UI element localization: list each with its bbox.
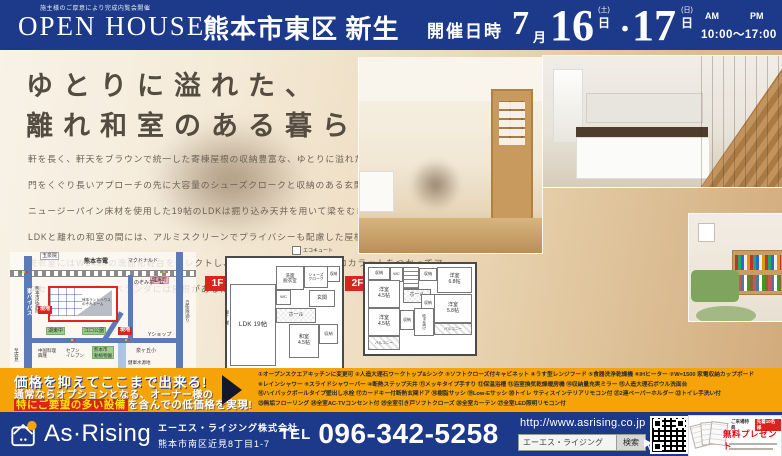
- qr-finder: [653, 419, 662, 428]
- price-copy-highlight: 特にご要望の多い設備: [14, 399, 128, 411]
- floor-plan-1f: LDK 19帖 物干し場 洗面 脱衣室 WC ホール 和室 4.5帖 収納 玄関…: [225, 256, 344, 372]
- arrow-right-icon: [222, 375, 242, 405]
- room-hall: ホール: [276, 308, 316, 323]
- gift-caption-line: [729, 443, 777, 445]
- tel-label: TEL: [280, 426, 311, 443]
- date-day2: 17: [632, 0, 676, 51]
- date-day1-weekday: (土): [598, 7, 610, 14]
- kitchen-back-cabinets: [586, 93, 703, 124]
- map-label-kotou-jhs: 湖東中: [46, 327, 65, 335]
- map-label-y-shop: Yショップ: [148, 332, 171, 338]
- company-info: エーエス・ライジング株式会社 熊本市南区近見8丁目1-7: [158, 421, 298, 450]
- access-map: 熊本市電 玉泉院 マクドナルド 健軍町 東バイパス 熊本市民病院 自衛隊通り 熊…: [10, 252, 196, 372]
- event-date-label: 開催日時: [427, 17, 503, 42]
- equipment-feature-list: ①オープンスクエアキッチンに変更可 ②人造大理石ワークトップ&シンク ③ソフトク…: [258, 371, 754, 409]
- company-address: 熊本市南区近見8丁目1-7: [158, 437, 298, 450]
- map-label-eguchi-park: 江口公園: [82, 327, 106, 335]
- room-genkan: 玄関: [309, 290, 335, 307]
- site-marker-1: 現地: [38, 306, 52, 314]
- room-balcony: バルコニー: [434, 323, 472, 335]
- gift-caption-line: [729, 448, 773, 450]
- room-closet: 収納: [400, 310, 414, 330]
- room-bedroom-68: 洋室 6.8帖: [437, 267, 472, 293]
- search-input[interactable]: エーエス・ライジング: [519, 435, 616, 450]
- date-month-unit: 月: [533, 27, 546, 46]
- house-logo-icon: [10, 420, 38, 448]
- map-label-to-chikami: 至近見: [14, 348, 19, 362]
- sofa-photo: [688, 213, 782, 322]
- feature-line: ①オープンスクエアキッチンに変更可 ②人造大理石ワークトップ&シンク ③ソフトク…: [258, 371, 754, 381]
- road-right: [176, 252, 183, 372]
- website-url[interactable]: http://www.asrising.co.jp: [520, 417, 646, 429]
- time-range: 10:00〜17:00: [701, 26, 777, 42]
- qr-finder: [653, 442, 662, 451]
- traffic-signal-icon: [122, 339, 130, 341]
- room-void: 吹き抜け: [414, 308, 434, 336]
- map-label-temple: 玉泉院: [40, 252, 59, 260]
- feature-line: ㉓無垢フローリング ㉔全室AC-TVコンセント付 ㉕全室引き戸ソフトクローズ ㉖…: [258, 400, 754, 410]
- bookshelf: [732, 250, 782, 295]
- open-house-title: OPEN HOUSE: [18, 11, 205, 42]
- room-closet: 収納: [419, 268, 437, 281]
- company-logo-text: As·Rising: [44, 420, 151, 448]
- room-closet: 収納: [327, 266, 340, 282]
- ecocute-marker: エコキュート: [292, 246, 333, 255]
- qr-finder: [676, 419, 685, 428]
- room-drying-area: 物干し場: [225, 310, 230, 325]
- stair-railing: [701, 56, 782, 187]
- kitchen-counter-top: [576, 127, 707, 137]
- room-wc: WC: [276, 290, 291, 305]
- kitchen-photo: [542, 55, 782, 188]
- flyer-page: 施主様のご厚意により完成内覧会開催 OPEN HOUSE 熊本市東区 新生 開催…: [0, 0, 782, 456]
- map-label-chinese-restaurant: 中国料理 興隆: [38, 348, 56, 359]
- map-label-nozomi-home: のぞみホーム: [134, 280, 164, 286]
- date-month: 7: [512, 5, 529, 43]
- map-label-estate-note: 熊本ランドハウス のぞみホーム: [82, 298, 111, 307]
- feature-line: ⑧レインシャワー ⑨スライドシャワーバー ⑩断熱ステップ天井 ⑪メッキタイプ手す…: [258, 381, 754, 391]
- interior-photo-dining: [358, 57, 543, 254]
- traffic-signal-icon: [160, 271, 168, 273]
- catch-copy-line1: ゆとりに溢れた、: [26, 64, 322, 103]
- estate-lot-grid: [50, 288, 82, 316]
- photo-wood-floor: [359, 218, 542, 253]
- catch-copy-line2: 離れ和室のある暮らし: [26, 104, 396, 143]
- room-closet: 収納: [319, 324, 338, 344]
- traffic-signal-icon: [68, 339, 76, 341]
- location-title: 熊本市東区 新生: [203, 9, 400, 46]
- map-label-water-source: 健軍水源地: [128, 360, 151, 365]
- room-balcony: バルコニー: [368, 336, 400, 350]
- room-ldk: LDK 19帖: [230, 284, 276, 366]
- room-bedroom-58: 洋室 5.8帖: [434, 294, 472, 323]
- feature-strip: 価格を抑えてここまで出来る! 通常ならオプションとなる、オーナー様の 特にご要望…: [0, 368, 782, 412]
- room-shoes-cloak: シューズ クローク: [304, 266, 328, 288]
- book-spines-row: [735, 255, 781, 270]
- map-label-seven-eleven: セブン イレブン: [66, 348, 84, 359]
- header-bar: 施主様のご厚意により完成内覧会開催 OPEN HOUSE 熊本市東区 新生 開催…: [0, 0, 782, 50]
- green-sofa: [691, 270, 739, 302]
- map-label-mcdonalds: マクドナルド: [128, 258, 158, 264]
- footer-bar: As·Rising エーエス・ライジング株式会社 熊本市南区近見8丁目1-7 T…: [0, 412, 782, 456]
- phone-block: TEL 096-342-5258: [280, 418, 499, 450]
- date-day2-unit: 日: [681, 17, 693, 29]
- company-name: エーエス・ライジング株式会社: [158, 421, 298, 434]
- gift-promo-box: ご来場特典 先着10名様 無料プレゼント: [688, 415, 782, 456]
- stairs-2f: [403, 267, 419, 289]
- map-label-tram: 熊本市電: [84, 259, 108, 266]
- ecocute-label: エコキュート: [303, 248, 333, 254]
- photo-wood-door: [491, 89, 533, 222]
- qr-code: [650, 416, 688, 454]
- photo-white-cabinet: [359, 171, 394, 212]
- round-rug: [696, 306, 756, 322]
- map-label-bypass: 東バイパス: [25, 288, 32, 316]
- time-am-label: AM: [705, 11, 719, 21]
- map-label-zoo: 熊本市 動植物園: [92, 346, 114, 359]
- book-spines-row: [735, 275, 781, 290]
- wall-art-frame: [698, 223, 715, 242]
- room-bedroom-45a: 洋室 4.5帖: [368, 280, 400, 308]
- map-label-izumigaoka-es: 泉ヶ丘小: [136, 348, 156, 354]
- site-estate-area: 熊本ランドハウス のぞみホーム: [48, 286, 118, 322]
- floor-plan-2f: 収納 WC 収納 洋室 6.8帖 洋室 4.5帖 ホール 収納 洋室 5.8帖 …: [363, 262, 477, 356]
- door-window-panes: [499, 101, 525, 145]
- room-washitsu: 和室 4.5帖: [289, 324, 319, 358]
- search-box[interactable]: エーエス・ライジング 検索: [518, 434, 646, 451]
- room-sanitary: 洗面 脱衣室: [276, 266, 304, 290]
- feature-line: ⑯ハイバックボールタイプ壁出し水栓 ⑰カードキー付断熱玄関ドア ⑱樹脂サッシ ⑲…: [258, 390, 754, 400]
- date-day1-unit: 日: [598, 17, 610, 29]
- site-marker-2: 現地: [118, 327, 132, 335]
- room-closet: 収納: [368, 267, 390, 280]
- water-channel: [118, 343, 126, 371]
- map-label-jieitai-street: 自衛隊通り: [185, 300, 190, 323]
- date-day2-weekday: (日): [681, 7, 693, 14]
- room-bedroom-45b: 洋室 4.5帖: [368, 308, 400, 336]
- time-pm-label: PM: [750, 11, 764, 21]
- tel-number: 096-342-5258: [318, 418, 498, 450]
- traffic-signal-icon: [20, 271, 28, 273]
- search-button[interactable]: 検索: [616, 435, 645, 450]
- kitchen-island: [576, 137, 709, 178]
- photo-furniture-silhouette: [410, 159, 461, 210]
- price-copy-line3: 特にご要望の多い設備を含んでの低価格を実現!: [14, 397, 252, 412]
- ecocute-icon: [292, 246, 301, 255]
- date-day1: 16: [550, 0, 594, 51]
